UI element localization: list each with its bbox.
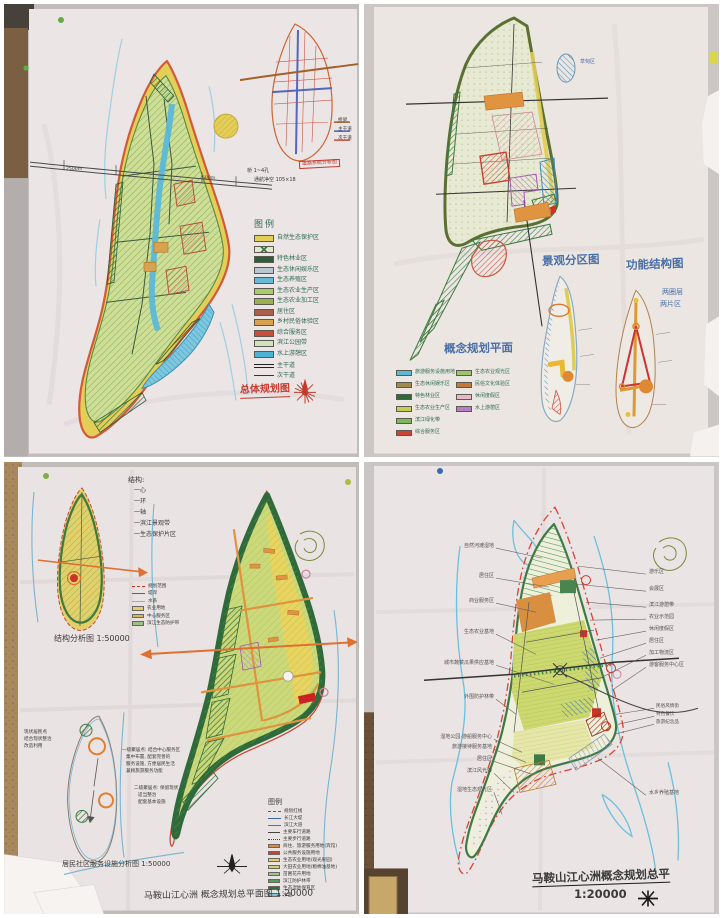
legend-item: 规划红线 xyxy=(268,809,302,814)
inset-legend-label: 次干道 xyxy=(338,136,352,141)
note-line: 一级聚居点: 结合中心服务区 xyxy=(122,748,180,753)
legend-label: 滨江生态防护带 xyxy=(147,621,179,626)
legend-label: 综合服务区 xyxy=(277,330,307,337)
callout-label: 加工物流区 xyxy=(649,651,674,657)
legend-swatch xyxy=(396,418,412,424)
legend-item: 特色林业区 xyxy=(254,256,307,263)
legend-item: 水上游憩区 xyxy=(456,406,500,412)
legend-label: 滨江大道 xyxy=(284,823,302,828)
callout-label: 外围防护林带 xyxy=(372,695,494,701)
callout-label: 城市蔬菜瓜果供应基地 xyxy=(372,661,494,667)
note-line: 服务设施, 方便居民生活 xyxy=(126,762,175,767)
annotated-plan-drawing xyxy=(364,462,719,915)
cork-tag xyxy=(364,868,408,914)
callout-label: 湿地公园·游船服务中心 xyxy=(370,735,492,741)
legend-label: 生态农业用地(观光果园) xyxy=(283,858,333,863)
scale-label: 1:20000 xyxy=(574,888,627,901)
mini-legend-item: 规划范围 xyxy=(132,584,166,589)
legend-swatch xyxy=(268,865,280,870)
callout-label: 游客服务中心区 xyxy=(649,663,684,669)
callout-label: 商业服务区 xyxy=(372,599,494,605)
legend-label: 苗圃花卉用地 xyxy=(283,872,311,877)
legend-swatch xyxy=(456,406,472,412)
overall-plan-drawing xyxy=(4,4,359,457)
legend-label: 次干道 xyxy=(277,373,295,380)
note-line: 配套基本设施 xyxy=(138,800,166,805)
legend-swatch xyxy=(254,351,274,358)
concept-plan-drawing xyxy=(364,4,719,457)
meadow-blob xyxy=(557,54,575,82)
legend-label: 滨江绿化带 xyxy=(415,418,440,424)
legend-road-symbol xyxy=(254,375,274,376)
legend-swatch xyxy=(254,330,274,337)
legend-swatch xyxy=(254,277,274,284)
legend-label: 自然生态保护区 xyxy=(277,235,319,242)
legend-item: 生态农业观光区 xyxy=(456,370,510,376)
legend-label: 中心服务区 xyxy=(147,614,170,619)
legend-item: 苗圃花卉用地 xyxy=(268,872,311,877)
legend-item: 生态农业生产区 xyxy=(396,406,450,412)
legend-label: 规划范围 xyxy=(148,584,166,589)
legend-symbol xyxy=(132,601,145,602)
legend-label: 休闲度假区 xyxy=(475,394,500,400)
legend-label: 商住、旅游服务用地(宾馆) xyxy=(283,844,337,849)
legend-swatch xyxy=(254,298,274,305)
legend-swatch xyxy=(254,235,274,242)
legend-swatch xyxy=(456,394,472,400)
legend-label: 水上游憩区 xyxy=(475,406,500,412)
legend-label: 生态农业生产区 xyxy=(277,288,319,295)
legend-item: 滨江大道 xyxy=(268,823,302,828)
legend-item xyxy=(254,246,277,253)
callout-sub-label: 民俗风情街 xyxy=(656,704,679,709)
legend-swatch xyxy=(456,370,472,376)
legend-swatch xyxy=(268,844,280,849)
note-line: 现状居民点 xyxy=(24,730,47,735)
legend-label: 长江大堤 xyxy=(284,816,302,821)
legend-swatch xyxy=(132,621,144,626)
legend-swatch xyxy=(268,879,280,884)
note-line: 一生态保护片区 xyxy=(134,532,176,539)
legend-item: 生态农业加工区 xyxy=(254,298,319,305)
diagram-title: 功能结构图 xyxy=(626,257,684,272)
legend-item: 自然生态保护区 xyxy=(254,235,319,242)
pin xyxy=(43,473,49,479)
legend-swatch xyxy=(254,319,274,326)
map-title: 总体规划图 xyxy=(240,383,290,398)
legend-label: 特色林业区 xyxy=(277,256,307,263)
callout-label: 自然河滩湿地 xyxy=(372,544,494,550)
legend-label: 公共服务设施用地 xyxy=(283,851,320,856)
callout-label: 居住区 xyxy=(649,639,664,645)
legend-item: 居住区 xyxy=(254,309,295,316)
callout-label: 会展区 xyxy=(649,587,664,593)
photo-concept-plan: 景观分区图 功能结构图 两圈层 两片区 概念规划平面 草甸区 旅游服务设施用地 … xyxy=(364,4,719,457)
legend-label: 特色林业区 xyxy=(415,394,440,400)
tape xyxy=(709,52,717,64)
photo-masterplan-annotated: 自然河滩湿地 居住区 商业服务区 生态农业基地 城市蔬菜瓜果供应基地 外围防护林… xyxy=(364,462,719,915)
callout-label: 农业示范园 xyxy=(649,615,674,621)
legend-swatch xyxy=(254,340,274,347)
legend-swatch xyxy=(268,858,280,863)
legend-item: 主干道 xyxy=(254,363,295,370)
dimension-label: 500m xyxy=(202,176,215,181)
bridge-note: 桥 1~4孔 xyxy=(247,169,269,175)
callout-label: 湿地生态观光区 xyxy=(370,788,492,794)
legend-swatch xyxy=(396,370,412,376)
legend-label: 主要步行道路 xyxy=(283,837,311,842)
callout-label: 水乡养殖基地 xyxy=(649,791,679,797)
legend-label: 大田农业用地(粮棉油基地) xyxy=(283,865,337,870)
legend-symbol xyxy=(268,818,281,819)
legend-road-symbol xyxy=(254,364,274,368)
legend-swatch xyxy=(132,606,144,611)
legend-swatch xyxy=(254,309,274,316)
note-line: 一轴 xyxy=(134,510,146,517)
legend-title: 图例 xyxy=(254,220,276,230)
legend-item: 生态农业用地(观光果园) xyxy=(268,858,333,863)
callout-label: 游乐区 xyxy=(649,570,664,576)
legend-label: 水系 xyxy=(148,599,157,604)
note-line: 二级聚居点: 保留现状 xyxy=(134,786,178,791)
callout-sub-label: 旅游纪念品 xyxy=(656,720,679,725)
legend-swatch xyxy=(254,246,274,253)
legend-label: 生态休闲娱乐区 xyxy=(415,382,450,388)
legend-item: 滨江防护林带 xyxy=(268,879,311,884)
legend-swatch xyxy=(268,851,280,856)
legend-symbol xyxy=(132,586,145,587)
legend-label: 生态农业生产区 xyxy=(415,406,450,412)
legend-swatch xyxy=(268,872,280,877)
note-line: 一环 xyxy=(134,499,146,506)
note-line: 集中布置, 配套完善的 xyxy=(126,755,170,760)
legend-swatch xyxy=(396,406,412,412)
legend-item: 综合服务区 xyxy=(254,330,307,337)
diagram-title: 景观分区图 xyxy=(542,253,600,268)
note-line: 适当整治 xyxy=(138,793,156,798)
legend-label: 水上游憩区 xyxy=(277,351,307,358)
legend-label: 民俗文化体验区 xyxy=(475,382,510,388)
legend-label: 农业用地 xyxy=(147,606,165,611)
mini-legend-item: 农业用地 xyxy=(132,606,165,611)
blob-label: 草甸区 xyxy=(580,60,595,66)
legend-item: 商住、旅游服务用地(宾馆) xyxy=(268,844,337,849)
mini-legend-item: 堤岸 xyxy=(132,591,157,596)
legend-item: 公共服务设施用地 xyxy=(268,851,320,856)
legend-symbol xyxy=(268,832,280,833)
legend-swatch xyxy=(456,382,472,388)
legend-label: 堤岸 xyxy=(148,591,157,596)
callout-label: 旅游接待服务基地 xyxy=(370,745,492,751)
legend-swatch xyxy=(254,256,274,263)
legend-swatch xyxy=(254,288,274,295)
legend-item: 滨江公园带 xyxy=(254,340,307,347)
plan-title: 概念规划平面 xyxy=(444,341,513,355)
legend-title: 图例 xyxy=(268,798,282,806)
photo-masterplan-analysis: 结构: 一心 一环 一轴 一滨江景观带 一生态保护片区 规划范围 堤岸 水系 农… xyxy=(4,462,359,915)
legend-item: 主要步行道路 xyxy=(268,837,311,842)
note-line: 一滨江景观带 xyxy=(134,521,170,528)
legend-item: 休闲度假区 xyxy=(456,394,500,400)
legend-symbol xyxy=(268,811,281,812)
note-line: 兼顾旅游服务功能 xyxy=(126,769,163,774)
mini-legend-item: 水系 xyxy=(132,599,157,604)
legend-symbol xyxy=(268,825,281,826)
legend-label: 滨江公园带 xyxy=(277,340,307,347)
inset-legend-label: 桥梁 xyxy=(338,118,347,123)
legend-label: 生态休闲娱乐区 xyxy=(277,267,319,274)
legend-swatch xyxy=(396,430,412,436)
mini-legend-item: 滨江生态防护带 xyxy=(132,621,179,626)
legend-symbol xyxy=(132,593,145,594)
bridge-note: 通航净空 105×18 xyxy=(254,178,296,184)
legend-symbol xyxy=(268,839,280,840)
legend-swatch xyxy=(396,394,412,400)
notes-title: 结构: xyxy=(128,476,144,484)
legend-item: 长江大堤 xyxy=(268,816,302,821)
note-line: 一心 xyxy=(134,488,146,495)
structure-note: 两圈层 xyxy=(662,288,683,296)
dimension-label: 2500m xyxy=(66,167,82,172)
legend-item: 生态休闲娱乐区 xyxy=(396,382,450,388)
legend-label: 滨江防护林带 xyxy=(283,879,311,884)
callout-sub-label: 特色餐饮 xyxy=(656,712,674,717)
photo-grid: 图例 自然生态保护区 特色林业区 生态休闲娱乐区 生态养殖区 生态农业生产区 生… xyxy=(0,0,723,918)
inset-legend-label: 主干道 xyxy=(338,127,352,132)
legend-label: 综合服务区 xyxy=(415,430,440,436)
legend-item: 生态农业生产区 xyxy=(254,288,319,295)
pin xyxy=(437,468,443,474)
structure-note: 两片区 xyxy=(660,300,681,308)
pin xyxy=(24,66,29,71)
legend-item: 滨江绿化带 xyxy=(396,418,440,424)
map-title: 结构分析图 1:50000 xyxy=(54,634,130,643)
legend-item: 生态养殖区 xyxy=(254,277,307,284)
callout-label: 滨江游憩带 xyxy=(649,603,674,609)
legend-swatch xyxy=(254,267,274,274)
legend-item: 大田农业用地(粮棉油基地) xyxy=(268,865,337,870)
legend-label: 生态农业观光区 xyxy=(475,370,510,376)
legend-label: 旅游服务设施用地 xyxy=(415,370,455,376)
legend-item: 旅游服务设施用地 xyxy=(396,370,455,376)
map-title: 居民社区服务设施分析图 1:50000 xyxy=(62,860,170,868)
pin xyxy=(58,17,64,23)
legend-item: 水上游憩区 xyxy=(254,351,307,358)
photo-overall-plan: 图例 自然生态保护区 特色林业区 生态休闲娱乐区 生态养殖区 生态农业生产区 生… xyxy=(4,4,359,457)
legend-item: 综合服务区 xyxy=(396,430,440,436)
legend-label: 主要车行道路 xyxy=(283,830,311,835)
legend-item: 生态休闲娱乐区 xyxy=(254,267,319,274)
callout-label: 居住区 xyxy=(370,757,492,763)
legend-item: 乡村民俗体验区 xyxy=(254,319,319,326)
legend-item: 民俗文化体验区 xyxy=(456,382,510,388)
pin xyxy=(345,479,351,485)
legend-item: 特色林业区 xyxy=(396,394,440,400)
note-line: 改造利用 xyxy=(24,744,42,749)
legend-label: 居住区 xyxy=(277,309,295,316)
note-line: 结合现状整治 xyxy=(24,737,52,742)
legend-label: 规划红线 xyxy=(284,809,302,814)
legend-label: 主干道 xyxy=(277,363,295,370)
callout-label: 休闲度假区 xyxy=(649,627,674,633)
legend-swatch xyxy=(132,614,144,619)
legend-label: 乡村民俗体验区 xyxy=(277,319,319,326)
legend-label: 生态养殖区 xyxy=(277,277,307,284)
legend-item: 主要车行道路 xyxy=(268,830,311,835)
mini-legend-item: 中心服务区 xyxy=(132,614,170,619)
callout-label: 生态农业基地 xyxy=(372,630,494,636)
legend-swatch xyxy=(396,382,412,388)
callout-label: 滨江风光带 xyxy=(370,769,492,775)
legend-label: 生态农业加工区 xyxy=(277,298,319,305)
callout-label: 居住区 xyxy=(372,574,494,580)
legend-item: 次干道 xyxy=(254,373,295,380)
